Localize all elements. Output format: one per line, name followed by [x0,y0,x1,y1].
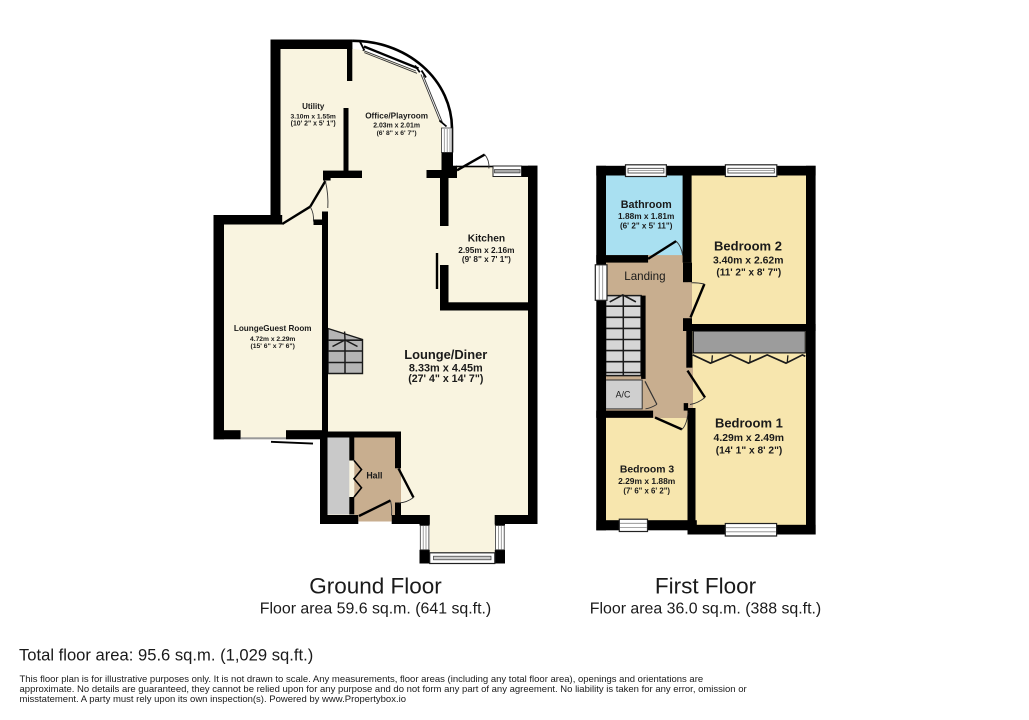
svg-text:Utility: Utility [302,102,325,111]
svg-text:(9' 8" x 7' 1"): (9' 8" x 7' 1") [462,255,511,264]
svg-text:(15' 6" x 7' 6"): (15' 6" x 7' 6") [250,343,294,350]
svg-text:Landing: Landing [624,270,665,283]
svg-text:2.95m x 2.16m: 2.95m x 2.16m [458,245,514,255]
svg-text:(6' 2" x 5' 11"): (6' 2" x 5' 11") [620,221,673,230]
svg-text:Bathroom: Bathroom [621,199,672,211]
svg-text:Bedroom 2: Bedroom 2 [714,238,782,253]
svg-text:Ground Floor: Ground Floor [309,574,442,599]
svg-text:Kitchen: Kitchen [468,234,505,245]
svg-text:2.29m x 1.88m: 2.29m x 1.88m [618,476,675,486]
svg-text:LoungeGuest Room: LoungeGuest Room [234,324,312,333]
svg-text:(7' 6" x 6' 2"): (7' 6" x 6' 2") [623,486,670,495]
svg-text:Floor area 59.6 sq.m. (641 sq.: Floor area 59.6 sq.m. (641 sq.ft.) [260,601,491,618]
svg-text:Total floor area: 95.6 sq.m. (: Total floor area: 95.6 sq.m. (1,029 sq.f… [19,646,313,665]
svg-text:First Floor: First Floor [655,574,757,599]
svg-text:4.29m x 2.49m: 4.29m x 2.49m [714,433,784,444]
svg-text:Floor area 36.0 sq.m. (388 sq.: Floor area 36.0 sq.m. (388 sq.ft.) [590,601,821,618]
svg-text:(14' 1" x 8' 2"): (14' 1" x 8' 2") [716,446,783,457]
svg-text:2.03m x 2.01m: 2.03m x 2.01m [373,122,420,129]
svg-text:(10' 2" x 5' 1"): (10' 2" x 5' 1") [291,120,336,127]
svg-text:(11' 2" x 8' 7"): (11' 2" x 8' 7") [716,267,781,278]
svg-text:Hall: Hall [366,471,382,481]
svg-text:A/C: A/C [616,390,631,400]
svg-text:(27' 4" x 14' 7"): (27' 4" x 14' 7") [408,373,483,385]
svg-text:3.40m x 2.62m: 3.40m x 2.62m [713,255,783,266]
svg-text:misstatement. A party must rel: misstatement. A party must rely upon its… [20,694,407,705]
svg-text:Bedroom 1: Bedroom 1 [715,415,783,430]
svg-text:(6' 8" x 6' 7"): (6' 8" x 6' 7") [377,130,417,137]
svg-text:Lounge/Diner: Lounge/Diner [404,347,487,362]
svg-text:1.88m x 1.81m: 1.88m x 1.81m [618,211,674,221]
svg-text:Office/Playroom: Office/Playroom [365,111,428,120]
svg-text:Bedroom 3: Bedroom 3 [620,465,674,476]
